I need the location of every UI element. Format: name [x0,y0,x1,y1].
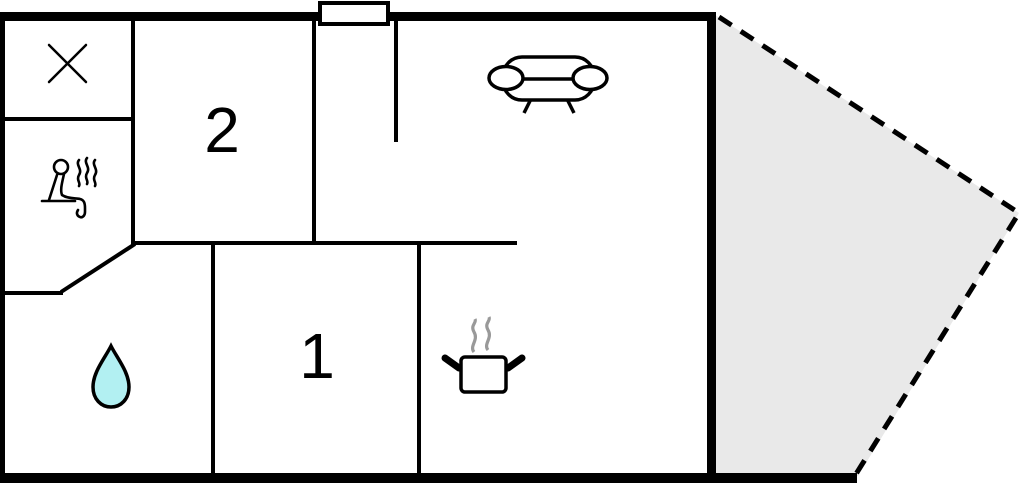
sauna-steam-2 [86,158,88,184]
sauna-steam-1 [78,160,80,186]
wall-diagonal [61,244,135,292]
pot-body [461,357,506,392]
pot-handle-right [508,358,522,368]
sauna-person-back [49,175,57,200]
outer-wall-right [707,12,716,483]
pot-handle-left [445,358,459,368]
pot-steam-2 [487,317,490,350]
floor-plan: 2 1 [0,0,1024,483]
cooking-pot-icon [445,317,522,392]
sofa-icon [489,57,607,113]
sofa-armrest-left [489,67,523,90]
pot-steam-1 [473,319,476,352]
closet-x-icon [49,45,86,82]
interior-walls [0,21,517,473]
sofa-armrest-right [573,67,607,90]
outer-wall-bottom [0,473,857,483]
sauna-person-head [54,160,68,174]
outer-wall-left [0,12,5,483]
sauna-icon [42,158,96,217]
room-label-1: 1 [299,324,335,388]
terrace-area [712,13,1019,476]
floor-plan-svg [0,0,1024,483]
room-label-2: 2 [204,98,240,162]
sauna-person-body [61,174,85,217]
sauna-steam-3 [94,160,96,186]
chimney-marker-icon [320,3,388,24]
water-drop-icon [93,346,129,407]
